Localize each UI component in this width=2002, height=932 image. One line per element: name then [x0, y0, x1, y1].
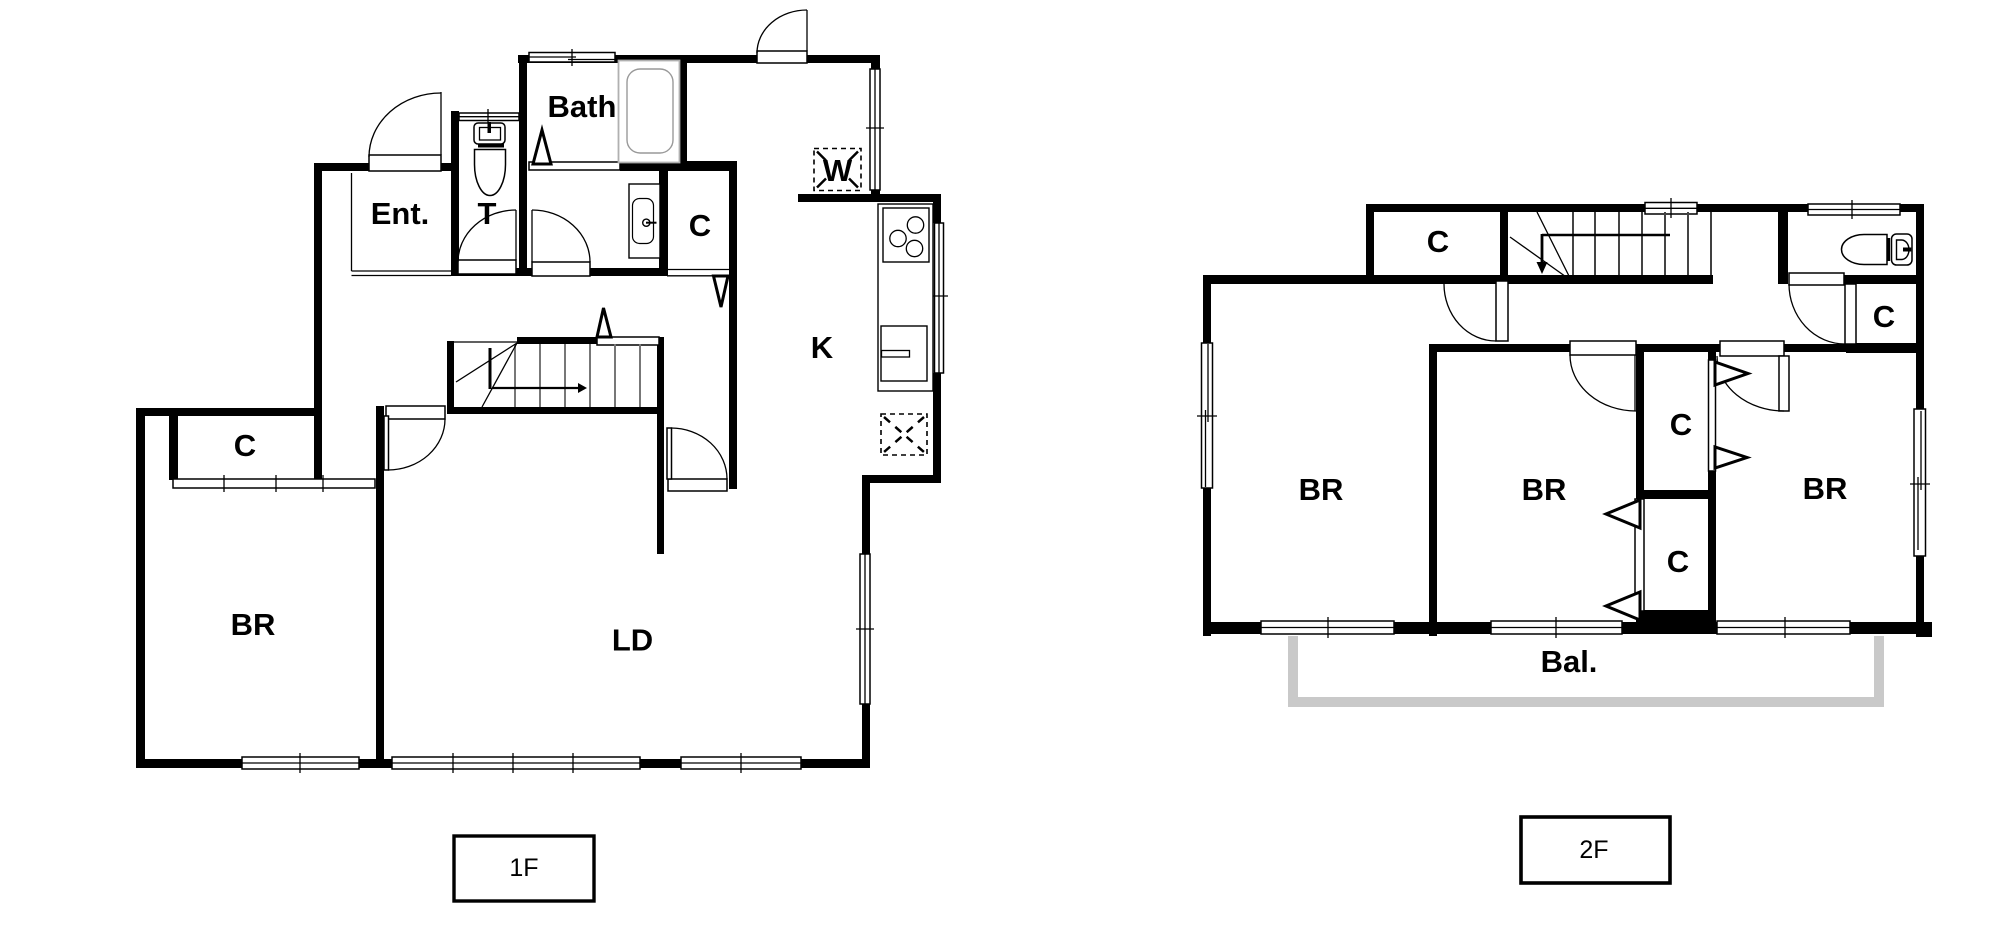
svg-text:1F: 1F: [509, 854, 538, 882]
svg-text:BR: BR: [231, 607, 276, 642]
svg-text:C: C: [1670, 407, 1692, 442]
svg-text:T: T: [478, 196, 497, 231]
svg-text:K: K: [811, 330, 834, 365]
svg-text:BR: BR: [1803, 471, 1848, 506]
svg-text:BR: BR: [1299, 472, 1344, 507]
svg-text:W: W: [823, 153, 853, 188]
svg-text:C: C: [1427, 224, 1449, 259]
svg-text:Bal.: Bal.: [1541, 644, 1598, 679]
svg-text:C: C: [234, 428, 256, 463]
svg-text:Ent.: Ent.: [371, 196, 430, 231]
svg-text:2F: 2F: [1579, 836, 1608, 864]
svg-text:C: C: [1873, 299, 1895, 334]
svg-text:C: C: [689, 208, 711, 243]
svg-text:Bath: Bath: [548, 89, 617, 124]
svg-text:BR: BR: [1522, 472, 1567, 507]
svg-text:C: C: [1667, 544, 1689, 579]
svg-text:LD: LD: [612, 623, 653, 658]
